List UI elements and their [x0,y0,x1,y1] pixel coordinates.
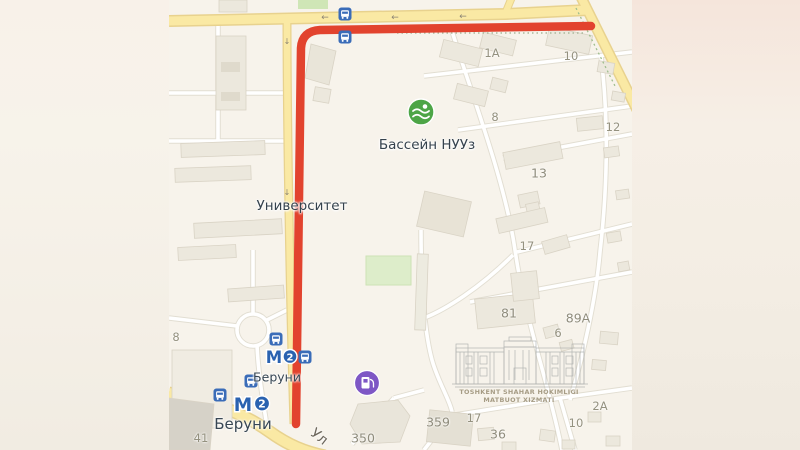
svg-text:2: 2 [258,398,266,411]
screenshot-stage: ← ← ← ↓ ↓ [0,0,800,450]
map-graphics: ← ← ← ↓ ↓ [169,0,632,450]
one-way-arrow-icon: ← [459,12,467,22]
bus-stop-icon [214,389,227,402]
bus-stop-icon [270,333,283,346]
one-way-arrow-icon: ↓ [284,188,291,197]
pool-icon [408,99,434,125]
bus-stop-icon [339,31,352,44]
bus-stop-icon [245,375,258,388]
blurred-right-margin [632,0,800,450]
buildings [169,0,630,450]
road-arrows: ← ← ← ↓ ↓ [284,12,468,197]
one-way-arrow-icon: ← [391,13,399,23]
svg-text:2: 2 [287,352,294,363]
one-way-arrow-icon: ← [321,13,329,23]
fuel-station-icon [355,371,380,396]
svg-text:М: М [234,395,252,416]
blurred-left-margin [0,0,169,450]
park-green [298,0,328,9]
map-canvas: ← ← ← ↓ ↓ [169,0,632,450]
svg-text:М: М [266,348,282,367]
bus-stop-icon [299,351,312,364]
bus-stop-icon [339,8,352,21]
sports-field [366,256,411,285]
one-way-arrow-icon: ↓ [284,37,291,46]
